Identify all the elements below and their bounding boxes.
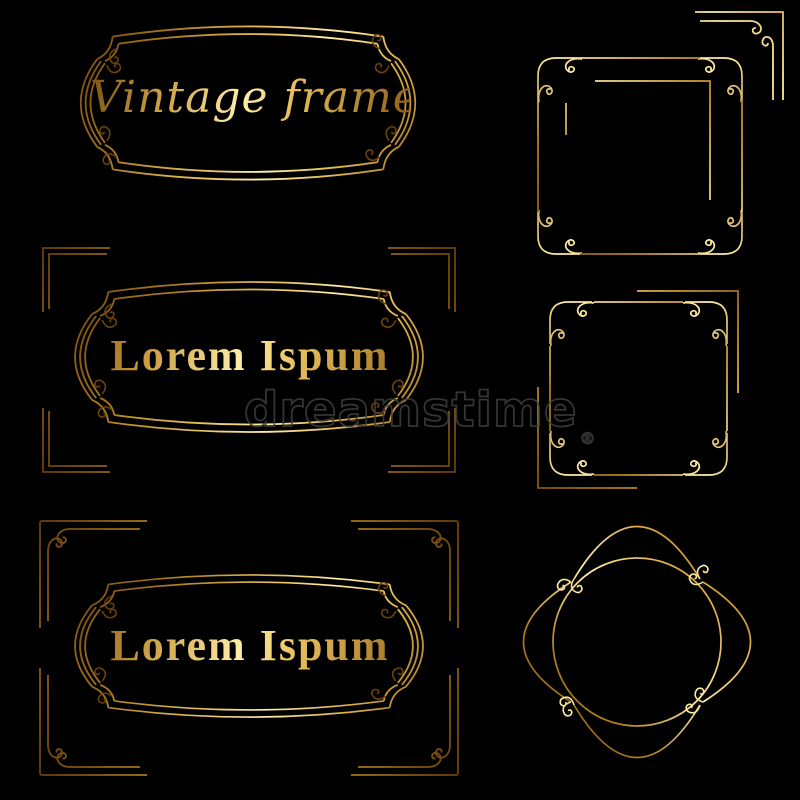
round-scroll-frame-icon	[516, 516, 760, 766]
registered-mark-icon: ®	[580, 429, 597, 448]
vintage-title-label: Vintage frames	[90, 72, 410, 123]
lorem-bottom-label: Lorem Ispum	[70, 620, 430, 671]
lorem-middle-label: Lorem Ispum	[70, 330, 430, 381]
square-scroll-frame-icon	[534, 52, 746, 258]
vintage-frames-canvas: { "canvas": { "background_color": "#0000…	[0, 0, 800, 800]
artboard: Vintage frames Lorem Ispum Lorem Ispum	[0, 0, 800, 800]
watermark-text: dreamstime	[244, 382, 578, 438]
watermark: dreamstime®	[244, 382, 597, 448]
